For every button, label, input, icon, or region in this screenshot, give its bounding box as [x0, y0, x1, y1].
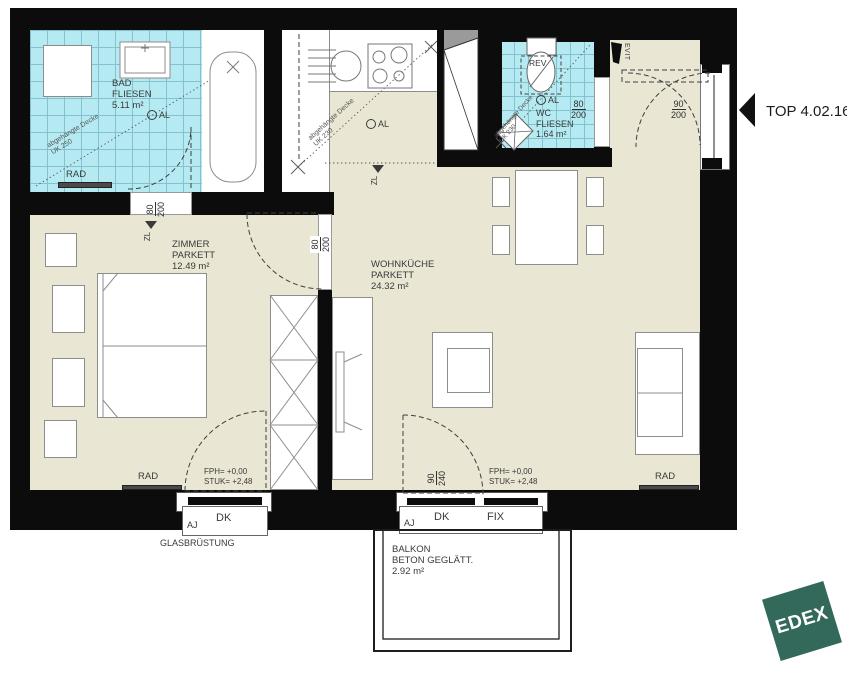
entry-door-frame: [700, 64, 730, 170]
stuk-level: STUK= +2,48: [489, 477, 537, 487]
shelf: [45, 233, 77, 267]
room-name: WC: [536, 108, 574, 119]
zl-triangle-icon: [145, 221, 157, 229]
room-finish: FLIESEN: [536, 119, 574, 130]
wall-top: [10, 8, 737, 30]
dim-height: 240: [437, 471, 447, 486]
wardrobe: [270, 295, 318, 490]
room-name: ZIMMER: [172, 239, 215, 250]
nightstand: [52, 285, 85, 333]
edex-logo-text: EDEX: [773, 603, 831, 640]
bad-room-label: BAD FLIESEN 5.11 m²: [112, 78, 152, 111]
balcony-window-aj-label: AJ: [404, 518, 415, 528]
wall-wc-bottom: [437, 148, 612, 167]
entry-door-cap-top: [702, 64, 722, 73]
edex-logo: EDEX: [762, 581, 842, 661]
kitchen-counter-left: [282, 30, 330, 192]
wc-door-dim: 80 200: [571, 99, 586, 120]
dresser: [44, 420, 77, 458]
shower: [43, 45, 92, 97]
sideboard: [332, 297, 373, 480]
room-name: BALKON: [392, 544, 473, 555]
rad-label-zimmer: RAD: [138, 471, 158, 482]
radiator: [122, 485, 182, 490]
balkon-room-label: BALKON BETON GEGLÄTT. 2.92 m²: [392, 544, 473, 577]
room-area: 24.32 m²: [371, 281, 434, 292]
al-label: AL: [159, 110, 170, 120]
balcony-door-dim: 90 240: [426, 471, 447, 486]
zl-label-bad: ZL: [143, 232, 152, 241]
rad-label-wohnkueche: RAD: [655, 471, 675, 482]
wall-bottom: [10, 490, 737, 530]
dining-chair: [492, 225, 510, 255]
fph-level: FPH= +0,00: [489, 467, 537, 477]
dim-height: 200: [156, 202, 166, 217]
wc-room-label: WC FLIESEN 1.64 m²: [536, 108, 574, 140]
sofa-cushions: [637, 348, 683, 437]
dim-height: 200: [671, 110, 686, 120]
wall-bad-kueche: [264, 8, 282, 195]
bad-door-dim: 80 200: [145, 202, 166, 217]
radiator: [639, 485, 699, 490]
wall-hall-top: [610, 28, 700, 40]
unit-arrow-icon: [739, 93, 755, 127]
dim-width: 90: [672, 99, 686, 110]
rev-label: REV: [529, 58, 546, 68]
glasbruestung-label: GLASBRÜSTUNG: [160, 538, 235, 548]
room-area: 12.49 m²: [172, 261, 215, 272]
level-note-zimmer: FPH= +0,00 STUK= +2,48: [204, 467, 252, 487]
zimmer-window-aj-label: AJ: [187, 520, 198, 530]
dining-chair: [586, 225, 604, 255]
radiator: [58, 182, 112, 188]
al-marker-kueche: AL: [366, 119, 389, 129]
wall-shaft: [437, 28, 502, 165]
room-finish: FLIESEN: [112, 89, 152, 100]
balcony-window-glass-fix: [484, 498, 538, 505]
fph-level: FPH= +0,00: [204, 467, 252, 477]
dining-chair: [492, 177, 510, 207]
al-circle-icon: [366, 119, 376, 129]
room-finish: PARKETT: [371, 270, 434, 281]
zimmer-window-dk-label: DK: [216, 512, 231, 524]
unit-title: TOP 4.02.16: [766, 103, 847, 120]
evit-label: EVIT: [623, 43, 630, 61]
balcony-window-label-box: [399, 506, 543, 534]
room-name: BAD: [112, 78, 152, 89]
zl-triangle-icon: [372, 165, 384, 173]
room-area: 1.64 m²: [536, 129, 574, 140]
rad-label-bad: RAD: [66, 169, 86, 180]
dim-height: 200: [571, 110, 586, 120]
al-label: AL: [378, 119, 389, 129]
wall-wc-top: [500, 28, 610, 42]
wohnkueche-room-label: WOHNKÜCHE PARKETT 24.32 m²: [371, 259, 434, 292]
dining-chair: [586, 177, 604, 207]
dim-height: 200: [321, 237, 331, 252]
level-note-wohnkueche: FPH= +0,00 STUK= +2,48: [489, 467, 537, 487]
entry-door-dim: 90 200: [671, 99, 686, 120]
room-area: 2.92 m²: [392, 566, 473, 577]
balcony-window-fix-label: FIX: [487, 511, 504, 523]
wc-door-opening: [594, 77, 610, 147]
dim-width: 90: [426, 472, 437, 486]
stuk-level: STUK= +2,48: [204, 477, 252, 487]
al-marker-bad: AL: [147, 110, 170, 120]
dim-width: 80: [572, 99, 586, 110]
al-circle-icon: [147, 110, 157, 120]
zl-label-kueche: ZL: [370, 176, 379, 185]
dim-width: 80: [310, 238, 321, 252]
room-finish: PARKETT: [172, 250, 215, 261]
floor-plan: BAD FLIESEN 5.11 m² ZIMMER PARKETT 12.49…: [0, 0, 847, 673]
zimmer-door-dim: 80 200: [310, 236, 331, 253]
bed: [97, 273, 207, 418]
armchair-cushion: [447, 348, 490, 393]
room-finish: BETON GEGLÄTT.: [392, 555, 473, 566]
balcony-window-dk-label: DK: [434, 511, 449, 523]
entry-door-cap-bottom: [702, 158, 722, 169]
room-name: WOHNKÜCHE: [371, 259, 434, 270]
zimmer-room-label: ZIMMER PARKETT 12.49 m²: [172, 239, 215, 272]
bad-tub-zone: [202, 30, 265, 192]
nightstand: [52, 358, 85, 407]
al-label: AL: [548, 95, 559, 105]
dining-table: [515, 170, 578, 265]
balcony-window-glass-dk: [407, 498, 475, 505]
dim-width: 80: [145, 203, 156, 217]
room-area: 5.11 m²: [112, 100, 152, 111]
zimmer-window-glass: [188, 497, 262, 505]
wall-left: [10, 8, 30, 530]
